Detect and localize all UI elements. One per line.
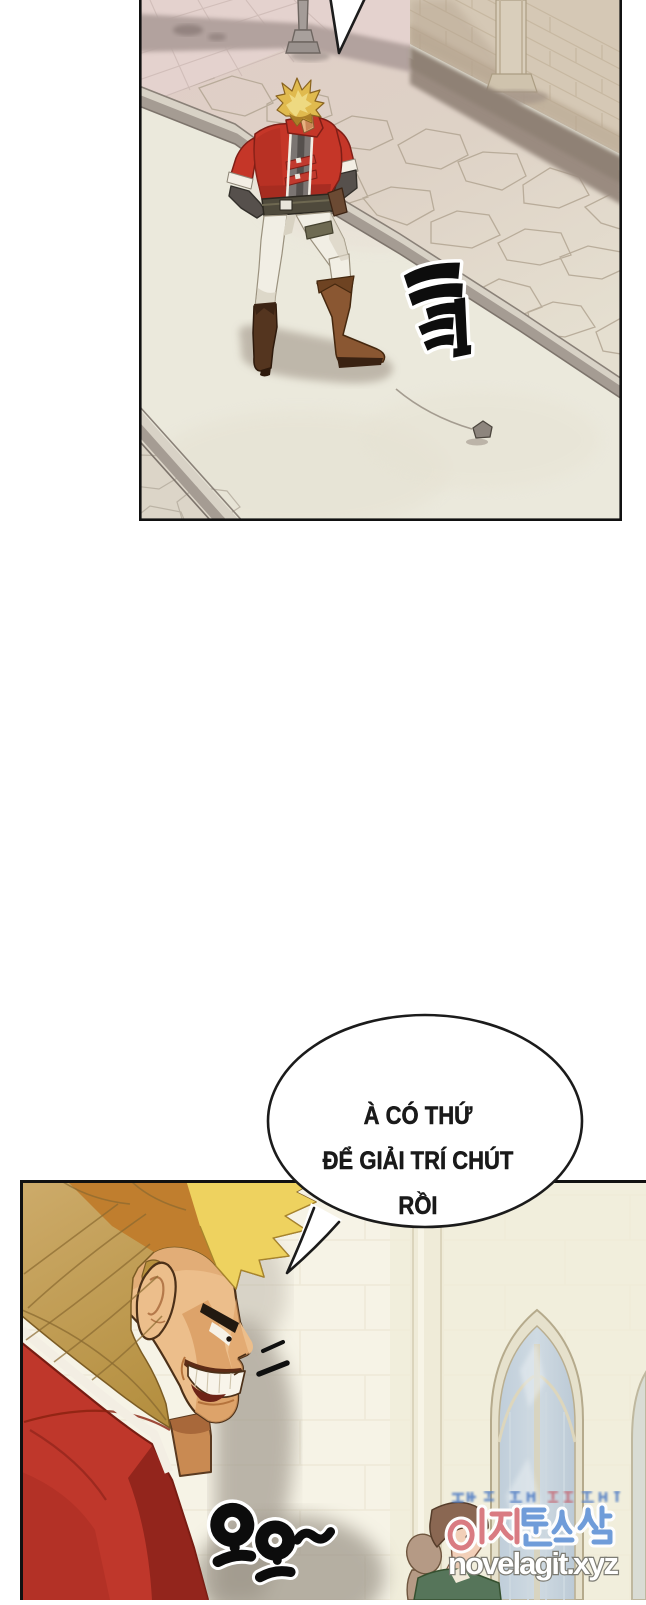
- svg-text:novelagit.xyz: novelagit.xyz: [448, 1546, 619, 1581]
